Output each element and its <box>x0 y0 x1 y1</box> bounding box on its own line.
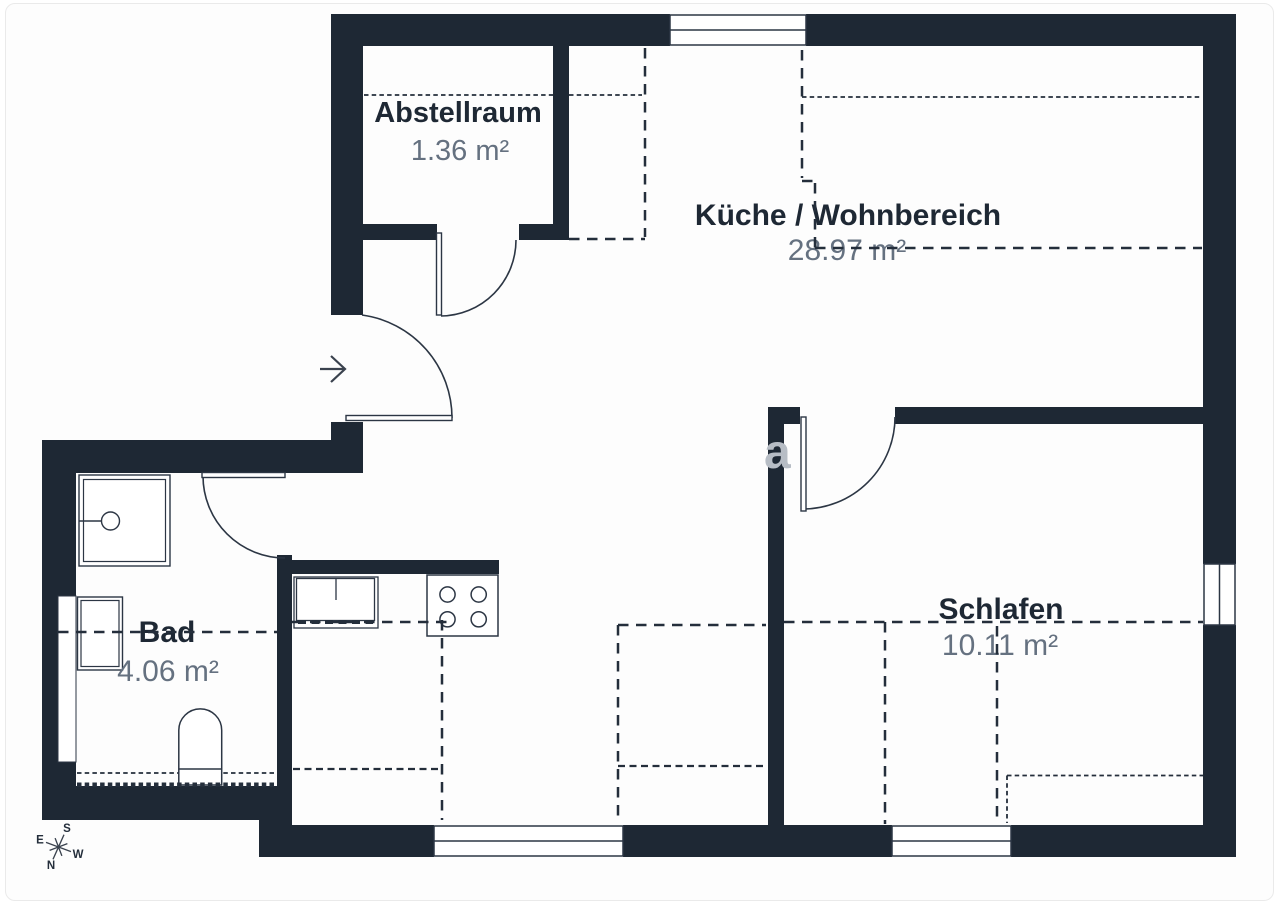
svg-text:N: N <box>47 860 55 872</box>
svg-text:W: W <box>73 849 84 861</box>
svg-text:4.06 m²: 4.06 m² <box>117 655 219 688</box>
svg-text:Küche / Wohnbereich: Küche / Wohnbereich <box>695 199 1001 232</box>
svg-text:E: E <box>36 835 44 847</box>
svg-text:S: S <box>63 823 71 835</box>
svg-text:28.97 m²: 28.97 m² <box>788 234 906 267</box>
svg-text:Abstellraum: Abstellraum <box>374 97 542 129</box>
svg-text:a: a <box>764 426 791 479</box>
svg-text:1.36 m²: 1.36 m² <box>411 135 510 167</box>
svg-text:10.11 m²: 10.11 m² <box>942 629 1058 662</box>
